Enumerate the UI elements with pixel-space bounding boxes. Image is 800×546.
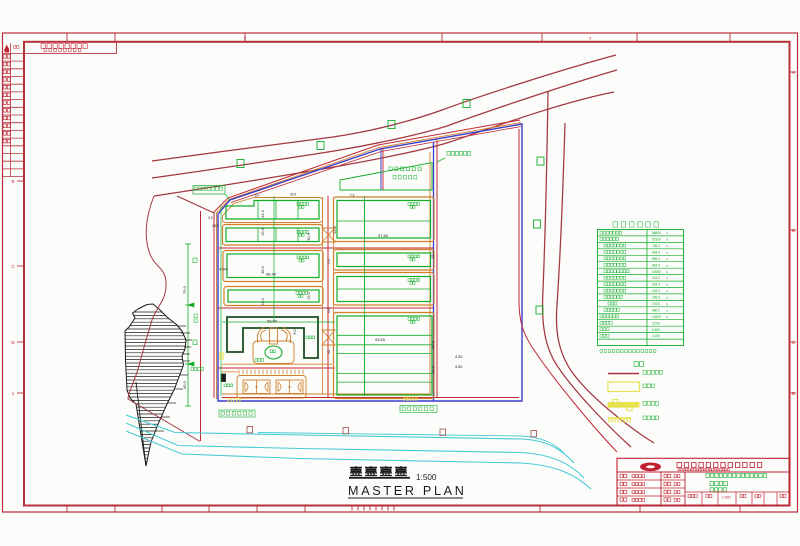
svg-text:480.0: 480.0 (652, 308, 660, 312)
svg-text:864.0: 864.0 (652, 263, 660, 267)
svg-text:m: m (666, 284, 668, 287)
svg-text:1: 1 (12, 391, 15, 396)
svg-text:15.0: 15.0 (307, 292, 311, 299)
svg-text:0.600: 0.600 (652, 328, 660, 332)
svg-text:7.5: 7.5 (350, 194, 355, 198)
svg-text:3: 3 (589, 36, 592, 41)
svg-text:86800: 86800 (652, 231, 661, 235)
svg-text:m: m (666, 290, 668, 293)
svg-text:m: m (666, 251, 668, 254)
svg-text:30.0: 30.0 (290, 193, 296, 197)
svg-text:70.00: 70.00 (652, 302, 660, 306)
svg-text:45.0: 45.0 (182, 380, 187, 389)
svg-text:98.40: 98.40 (266, 272, 277, 277)
svg-text:m: m (666, 297, 668, 300)
svg-text:m: m (666, 277, 668, 280)
svg-text:9.0: 9.0 (293, 329, 297, 334)
svg-text:14.50: 14.50 (652, 334, 660, 338)
svg-text:8.0: 8.0 (255, 194, 260, 198)
svg-text:m: m (666, 264, 668, 267)
svg-text:324.0: 324.0 (652, 276, 660, 280)
svg-text:3.0: 3.0 (208, 216, 213, 220)
svg-text:32.60: 32.60 (652, 321, 660, 325)
svg-text:D: D (11, 340, 15, 345)
svg-text:158.0: 158.0 (652, 296, 660, 300)
svg-text:432.0: 432.0 (652, 289, 660, 293)
svg-text:m: m (666, 239, 668, 242)
svg-text:24.0: 24.0 (333, 226, 337, 233)
svg-text:m: m (666, 245, 668, 248)
svg-text:1:500: 1:500 (722, 496, 731, 500)
svg-text:B: B (11, 179, 14, 184)
svg-text:12600: 12600 (652, 315, 661, 319)
svg-text:4.50: 4.50 (455, 365, 462, 369)
svg-text:324.0: 324.0 (652, 283, 660, 287)
svg-text:14.0: 14.0 (432, 366, 436, 373)
svg-text:756.0: 756.0 (652, 244, 660, 248)
svg-text:C: C (11, 264, 15, 269)
svg-text:648.0: 648.0 (652, 250, 660, 254)
svg-text:m: m (666, 316, 668, 319)
svg-text:30.0: 30.0 (307, 233, 311, 240)
svg-text:93.6: 93.6 (431, 341, 435, 348)
svg-text:1:500: 1:500 (416, 473, 437, 482)
svg-text:52100: 52100 (652, 238, 661, 242)
svg-text:m: m (666, 232, 668, 235)
svg-text:m: m (666, 309, 668, 312)
svg-text:m: m (666, 258, 668, 261)
svg-text:MASTER PLAN: MASTER PLAN (348, 484, 467, 498)
svg-text:58.50: 58.50 (267, 319, 278, 324)
svg-text:93.60: 93.60 (375, 337, 386, 342)
svg-text:m: m (666, 271, 668, 274)
svg-text:6.0: 6.0 (327, 307, 331, 312)
svg-text:2: 2 (244, 36, 247, 41)
svg-text:12.0: 12.0 (261, 298, 265, 305)
svg-text:4.500: 4.500 (219, 268, 228, 272)
svg-text:45: 45 (327, 350, 331, 354)
svg-text:45.0: 45.0 (431, 251, 435, 258)
svg-text:48.0: 48.0 (261, 266, 265, 273)
svg-text:97.80: 97.80 (378, 233, 389, 238)
svg-text:A: A (792, 70, 795, 75)
svg-text:B: B (792, 228, 795, 233)
svg-text:4.50: 4.50 (455, 355, 462, 359)
svg-text:589.0: 589.0 (652, 257, 660, 261)
svg-text:18.5: 18.5 (212, 224, 219, 228)
svg-text:10080: 10080 (652, 270, 661, 274)
svg-text:15.0: 15.0 (261, 228, 265, 235)
svg-text:24.0: 24.0 (261, 210, 265, 217)
svg-text:75.0: 75.0 (182, 285, 187, 294)
svg-text:m: m (666, 303, 668, 306)
svg-text:7.0: 7.0 (327, 259, 331, 264)
